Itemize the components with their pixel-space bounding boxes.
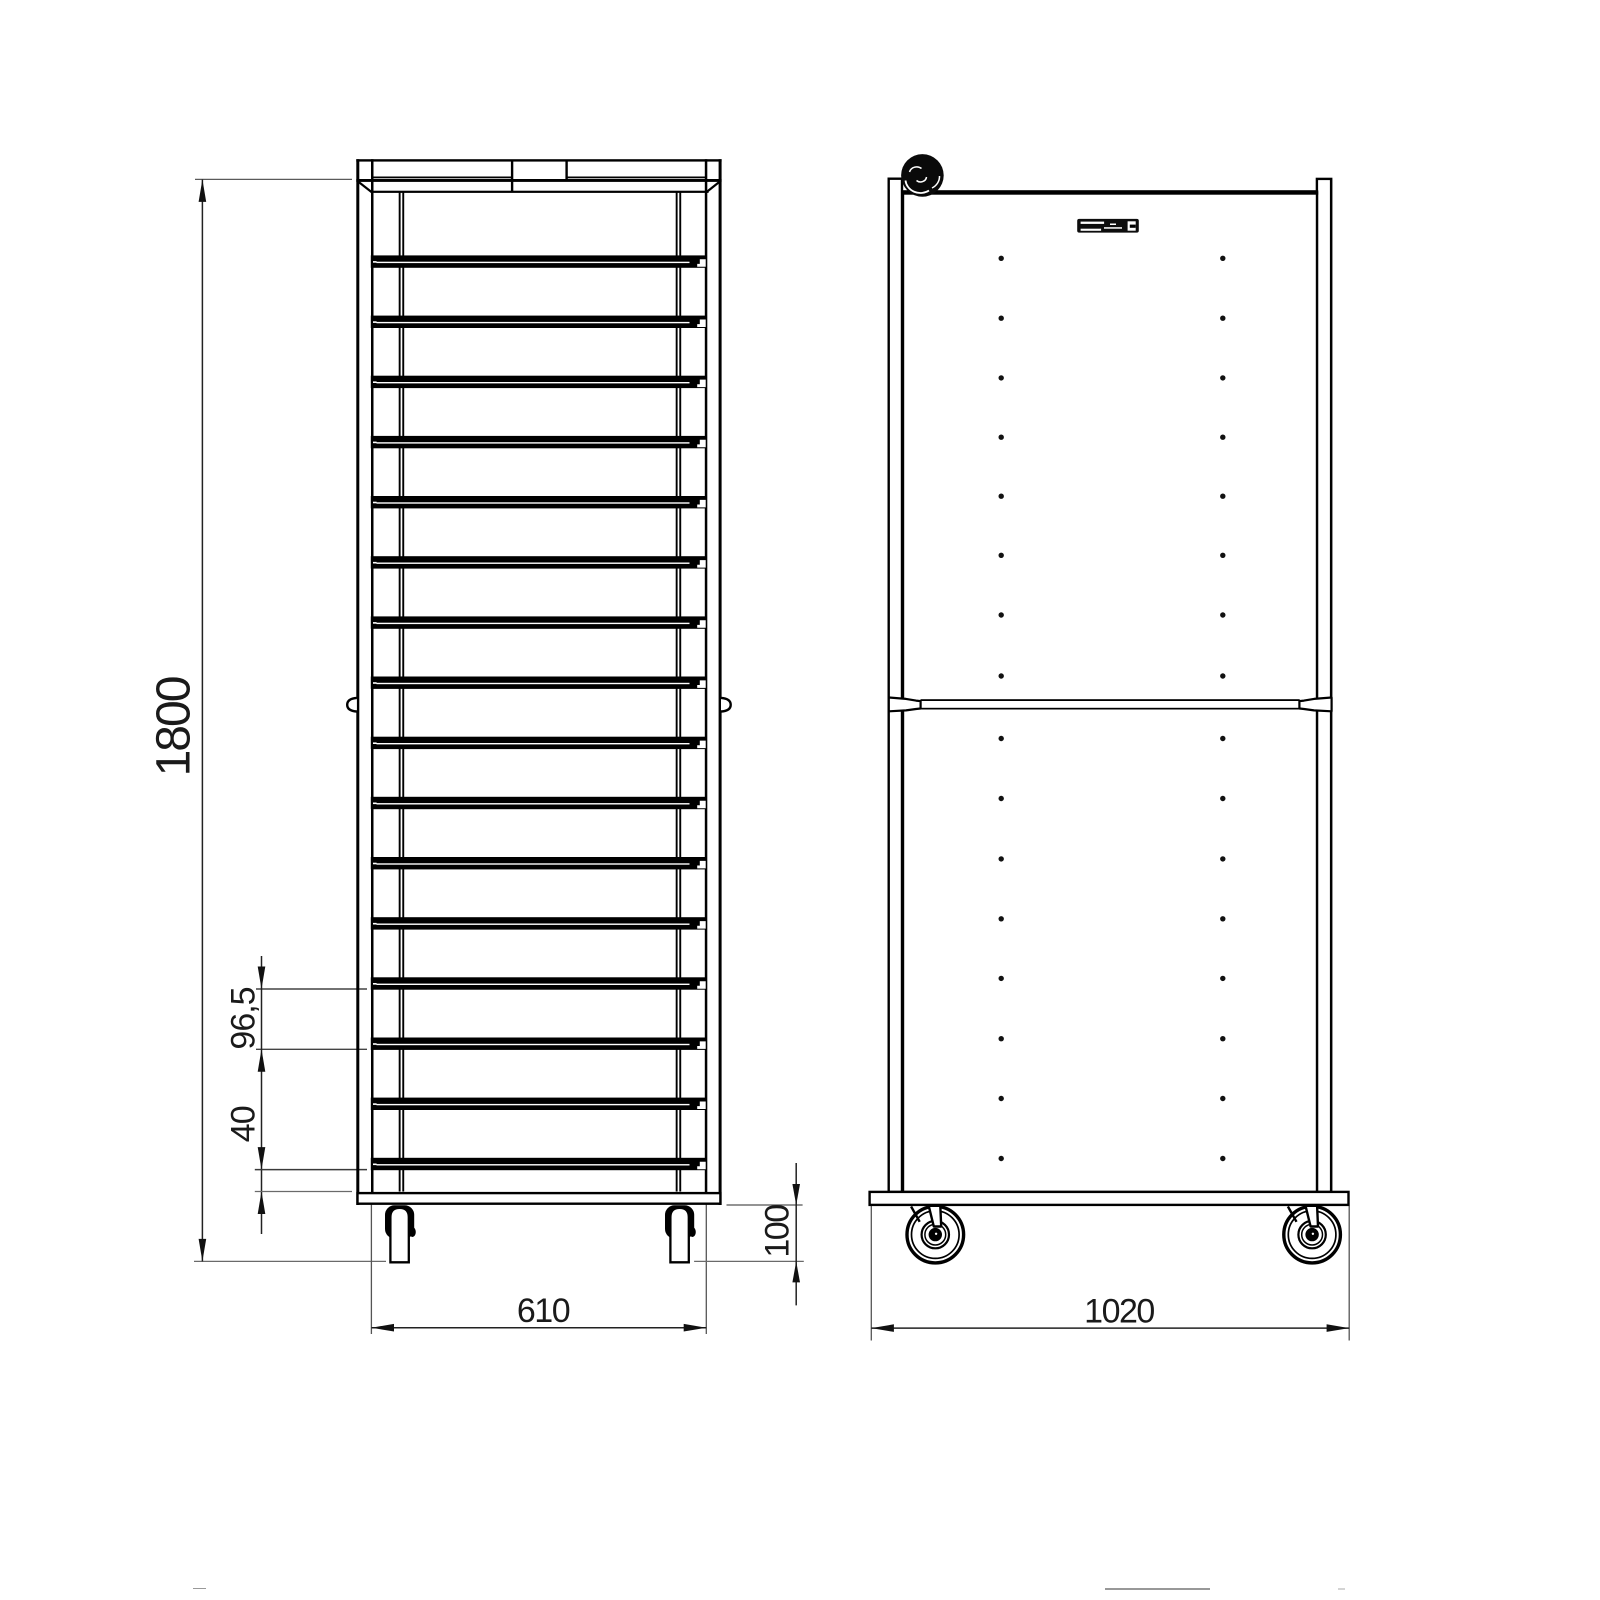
svg-text:1020: 1020 — [1084, 1293, 1154, 1331]
svg-text:610: 610 — [517, 1292, 570, 1330]
svg-text:96,5: 96,5 — [225, 987, 263, 1049]
svg-text:1800: 1800 — [148, 677, 201, 776]
svg-text:40: 40 — [225, 1106, 263, 1142]
svg-text:100: 100 — [759, 1205, 797, 1258]
